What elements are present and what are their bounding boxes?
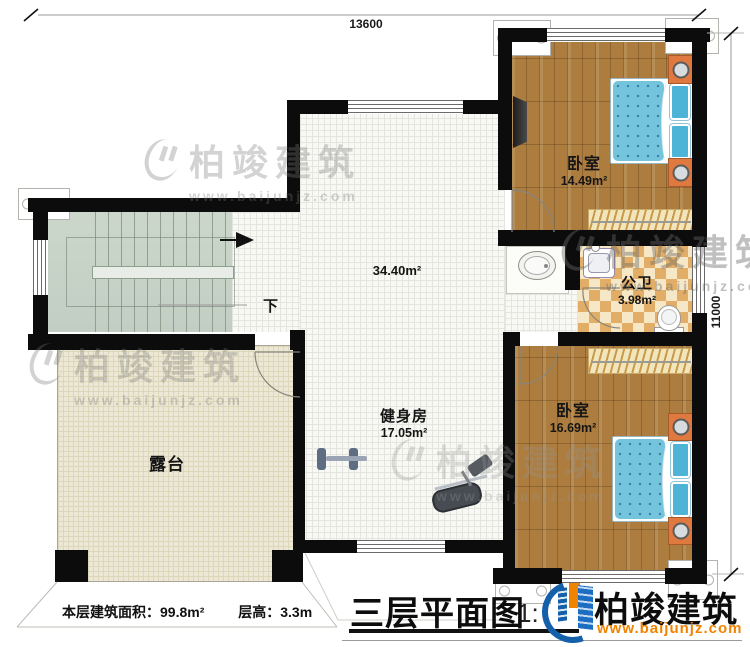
- stairs-arrow-head: [236, 232, 254, 248]
- room-label-bedroom-top: 卧室 14.49m²: [561, 150, 608, 188]
- dimension-right-label: 11000: [709, 272, 723, 352]
- room-label-hall-area: 34.40m²: [373, 263, 421, 278]
- watermark: 柏竣建筑 www.baijunjz.com: [392, 434, 608, 504]
- floor-height-text: 层高：3.3m: [238, 604, 312, 620]
- floor-area-text: 本层建筑面积：99.8m²: [62, 604, 204, 620]
- floor-plan: 柏竣建筑 www.baijunjz.com 柏竣建筑 www.baijunjz.…: [0, 0, 750, 647]
- room-label-bedroom-bottom: 卧室 16.69m²: [550, 397, 597, 435]
- watermark-logo-icon: [139, 135, 184, 185]
- page-title: 三层平面图: [350, 586, 525, 635]
- stairs-down-label: 下: [263, 295, 279, 316]
- brand-url: www.baijunjz.com: [597, 620, 742, 637]
- dimension-top-label: 13600: [330, 17, 402, 31]
- watermark: 柏竣建筑 www.baijunjz.com: [30, 338, 246, 408]
- watermark-logo-icon: [556, 225, 601, 275]
- door-arc: [520, 346, 558, 384]
- door-arc: [583, 288, 620, 328]
- door-arc: [512, 190, 554, 232]
- watermark-logo-icon: [386, 435, 431, 485]
- plan-annotations: [0, 0, 750, 647]
- door-arc: [255, 352, 300, 397]
- title-underline-thin: [342, 640, 742, 641]
- room-label-terrace: 露台: [149, 450, 185, 475]
- floor-area-annotation: 本层建筑面积：99.8m² 层高：3.3m: [62, 602, 342, 622]
- watermark: 柏竣建筑 www.baijunjz.com: [145, 134, 361, 204]
- watermark-logo-icon: [24, 339, 69, 389]
